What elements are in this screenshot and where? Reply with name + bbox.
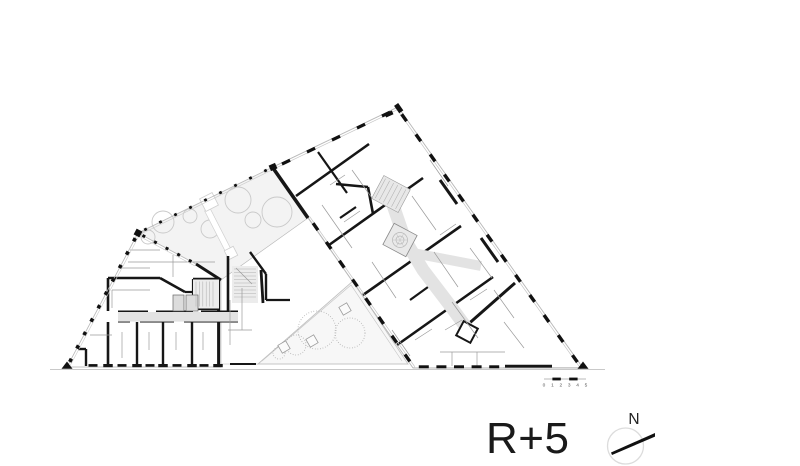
floor-plan-drawing: 0 1 2 3 4 5 R+5 N: [0, 0, 800, 466]
compass-north-label: N: [628, 411, 639, 428]
scale-label: 4: [576, 383, 579, 389]
scale-label: 1: [551, 383, 554, 389]
compass-needle: [611, 433, 655, 455]
scale-label: 5: [585, 383, 588, 389]
north-arrow-icon: N: [608, 411, 656, 464]
scale-bar: 0 1 2 3 4 5: [543, 378, 588, 389]
scale-label: 0: [543, 383, 546, 389]
floor-level-label: R+5: [486, 414, 569, 463]
scale-label: 2: [559, 383, 562, 389]
scale-label: 3: [568, 383, 571, 389]
floor-plan-page: 0 1 2 3 4 5 R+5 N: [0, 0, 800, 466]
